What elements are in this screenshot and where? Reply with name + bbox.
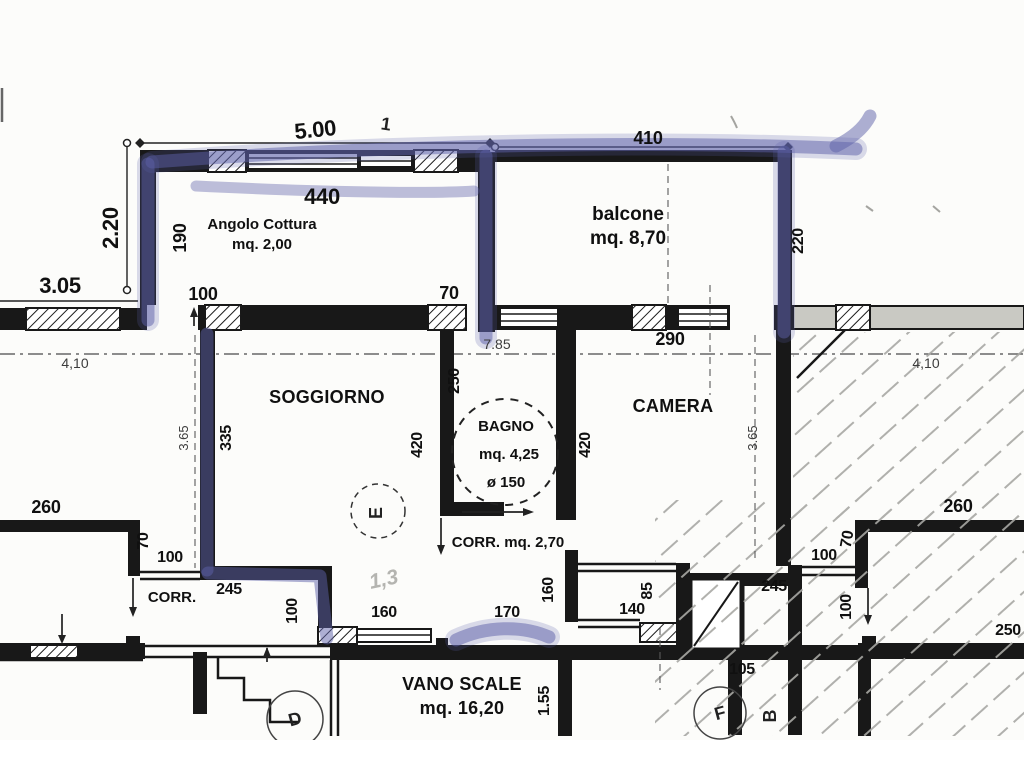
dim-cottura-door: 100 <box>188 284 217 304</box>
dim-corr-left: 245 <box>216 581 242 598</box>
corridor-area-label: CORR. mq. 2,70 <box>452 534 565 551</box>
room-balcone: balcone <box>592 204 664 225</box>
dim-camera-top: 290 <box>655 329 684 349</box>
room-vano-scale-area: mq. 16,20 <box>420 698 505 718</box>
marker-letter-b: B <box>760 710 780 723</box>
dim-corr-left-v: 100 <box>284 598 301 624</box>
room-bagno: BAGNO <box>478 418 534 435</box>
dim-corr-right-wall: 105 <box>729 661 755 678</box>
dim-scale-depth: 1.55 <box>536 686 553 716</box>
dim-balcone-top: 410 <box>633 128 662 148</box>
dim-bagno-left: 250 <box>446 368 463 394</box>
dim-soggiorno-left: 335 <box>218 425 235 451</box>
dim-corr-right: 245 <box>761 578 787 595</box>
dim-scale-wall-v: 160 <box>540 577 557 603</box>
room-bagno-area: mq. 4,25 <box>479 446 539 463</box>
dim-room-left-top: 260 <box>31 497 60 517</box>
room-vano-scale: VANO SCALE <box>402 674 522 694</box>
ref-dim-right: 4,10 <box>912 355 939 371</box>
dim-divider-door: 70 <box>439 283 459 303</box>
dim-left-wing: 3.05 <box>39 273 81 298</box>
room-corridoio: CORR. <box>148 589 196 606</box>
dim-scale-door-right: 140 <box>619 601 645 618</box>
ref-dim-left: 4,10 <box>61 355 88 371</box>
dim-top-overall: 5.00 <box>293 115 337 144</box>
dim-camera-wall: 420 <box>577 432 594 458</box>
dim-bagno-wall: 420 <box>409 432 426 458</box>
dim-corr-right-wall-v: 70 <box>838 529 858 549</box>
ref-dim-mid: 7.85 <box>483 336 510 352</box>
marker-letter-e: E <box>366 507 386 519</box>
dim-left-height: 2.20 <box>98 207 123 249</box>
neighbour-wall-band <box>793 306 1024 329</box>
room-balcone-area: mq. 8,70 <box>590 228 666 249</box>
dim-cottura-top: 440 <box>304 184 340 209</box>
ref-dim-soggiorno: 3.65 <box>176 425 191 450</box>
dim-balcone-right: 220 <box>790 228 807 254</box>
dim-room-right-top: 260 <box>943 496 972 516</box>
room-angolo-cottura-area: mq. 2,00 <box>232 236 292 253</box>
scan-bottom-fade <box>0 740 1024 768</box>
floor-plan-canvas: 5.00 410 440 2.20 190 Angolo Cottura mq.… <box>0 0 1024 768</box>
dim-scale-door: 170 <box>494 604 520 621</box>
ref-dim-camera: 3.65 <box>745 425 760 450</box>
dim-corr-right-v: 100 <box>838 594 855 620</box>
dim-corr-right-door: 100 <box>811 547 837 564</box>
floor-plan-scan: 5.00 410 440 2.20 190 Angolo Cottura mq.… <box>0 0 1024 768</box>
dim-scale-door-left: 160 <box>371 604 397 621</box>
dim-corr-left-door: 100 <box>157 549 183 566</box>
room-angolo-cottura: Angolo Cottura <box>207 216 317 233</box>
room-soggiorno: SOGGIORNO <box>269 387 385 407</box>
dim-corr-left-wall: 70 <box>135 532 152 550</box>
room-camera: CAMERA <box>633 396 714 416</box>
dim-room-right-side: 250 <box>995 622 1021 639</box>
dim-cottura-left: 190 <box>170 223 190 252</box>
dim-corr-right-opening: 85 <box>639 582 656 600</box>
room-bagno-diameter: ø 150 <box>487 474 525 491</box>
